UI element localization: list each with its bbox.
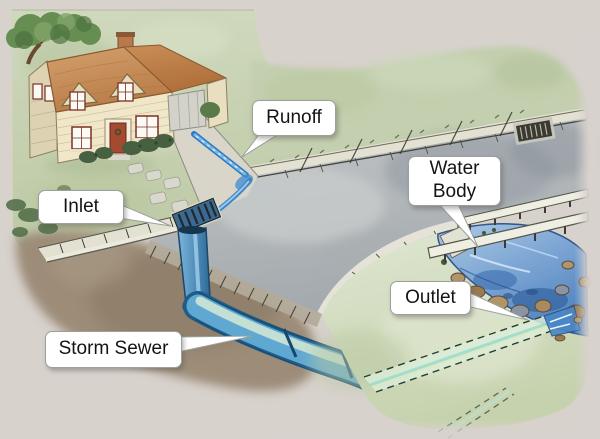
callout-runoff: Runoff: [252, 100, 336, 136]
front-window: [70, 127, 93, 152]
callout-outlet: Outlet: [390, 281, 471, 315]
callout-outlet-label: Outlet: [405, 287, 456, 310]
storm-sewer-diagram: Runoff Inlet Water Body Outlet Storm Sew…: [0, 0, 600, 439]
callout-water-body: Water Body: [408, 156, 501, 206]
garage-shrub: [200, 102, 220, 118]
callout-water-body-label: Water Body: [424, 158, 486, 204]
gable-window: [33, 84, 42, 99]
basin-opening: [178, 226, 206, 234]
callout-storm-sewer-label: Storm Sewer: [59, 338, 169, 361]
callout-runoff-label: Runoff: [266, 107, 322, 130]
callout-storm-sewer: Storm Sewer: [45, 331, 182, 368]
callout-inlet: Inlet: [38, 190, 124, 224]
callout-inlet-label: Inlet: [63, 196, 99, 219]
chimney-cap: [116, 32, 135, 37]
